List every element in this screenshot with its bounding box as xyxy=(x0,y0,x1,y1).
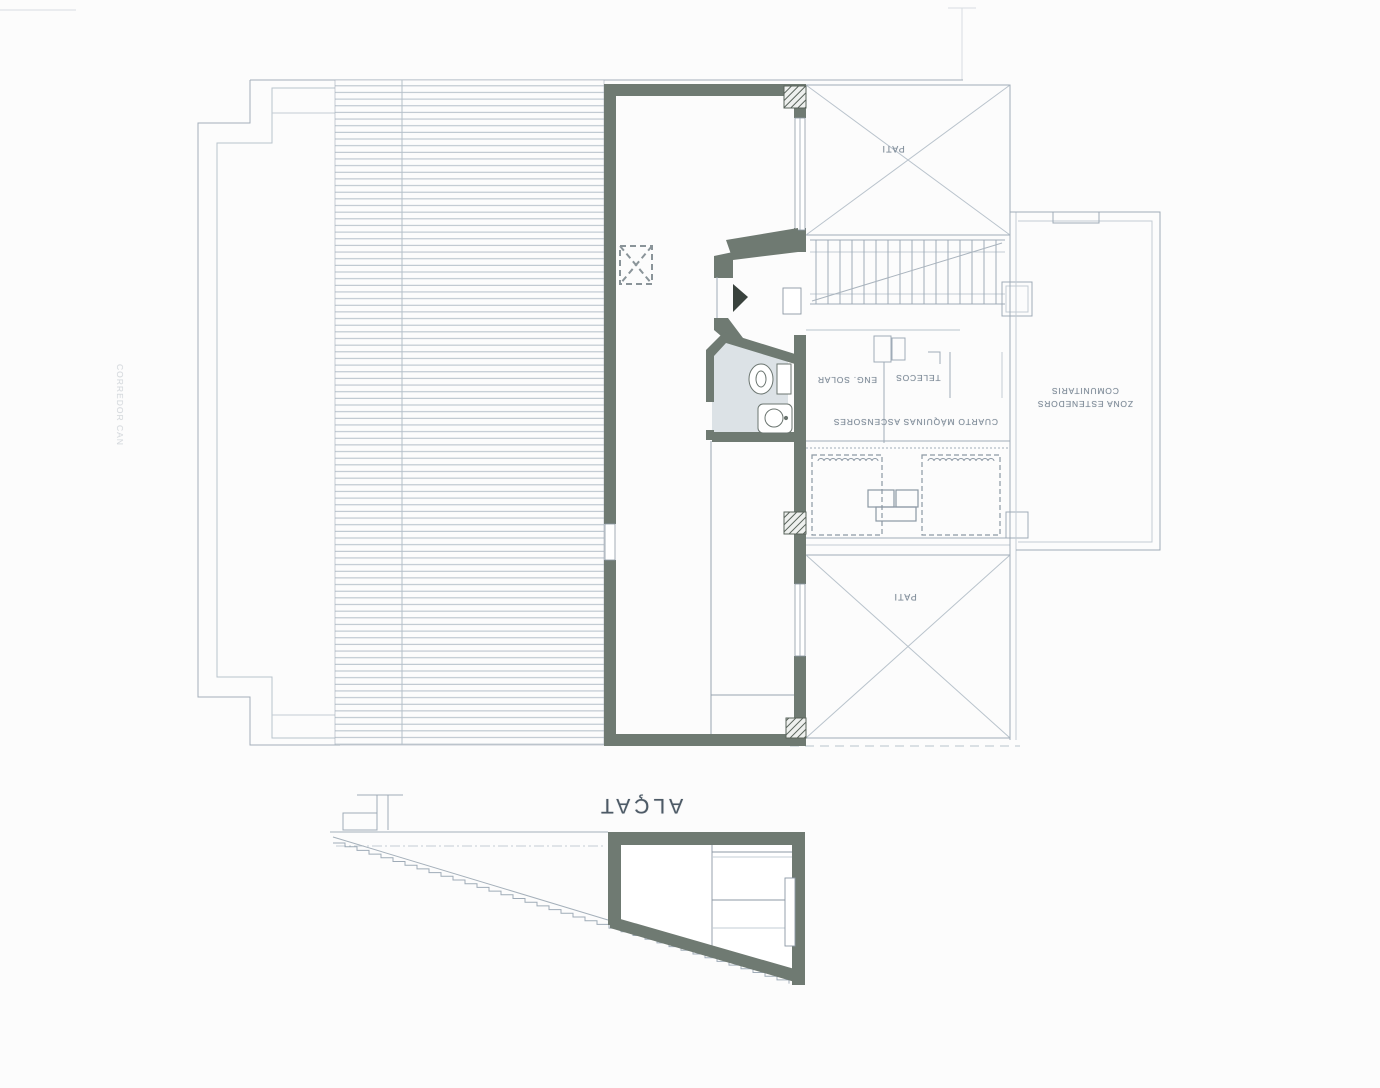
estenedors-label-line1: ZONA ESTENEDORS xyxy=(1037,399,1133,409)
sink xyxy=(758,404,792,433)
pati-top-label: PATI xyxy=(858,144,928,154)
pati-top xyxy=(806,85,1010,235)
tower-partitions xyxy=(711,441,794,734)
machine-coil-left xyxy=(818,459,878,461)
tower-wall-left-upper xyxy=(604,84,616,524)
section-door xyxy=(785,878,795,946)
door-threshold xyxy=(783,288,801,314)
section-chimney xyxy=(343,795,403,830)
skylight-dashed xyxy=(620,246,652,284)
solar-unit xyxy=(874,336,891,362)
estenedors-room xyxy=(1010,85,1160,740)
control-panel-b xyxy=(896,490,918,507)
telecos-label: TELECOS xyxy=(887,373,949,383)
telecom-unit xyxy=(892,338,905,360)
control-panel-a xyxy=(868,490,894,507)
machine-room xyxy=(806,455,1028,545)
pati-bottom xyxy=(790,555,1020,746)
section-drawing xyxy=(330,795,805,985)
toilet xyxy=(749,364,791,394)
tower-wall-top xyxy=(604,84,806,96)
section-slope-edge xyxy=(333,837,608,920)
eng-solar-label: ENG. SOLAR xyxy=(812,375,882,385)
corredor-label: CORREDOR CAN xyxy=(115,360,125,450)
estenedors-label-line2: COMUNITARIS xyxy=(1051,386,1119,396)
pillar-hatched-top xyxy=(784,86,806,108)
floor-plan-drawing xyxy=(0,0,1380,1088)
tower-wall-bottom xyxy=(604,734,806,746)
machine-coil-right xyxy=(928,459,994,461)
pati-bottom-label: PATI xyxy=(870,592,940,602)
estenedors-label: ZONA ESTENEDORS COMUNITARIS xyxy=(1025,384,1145,410)
scanned-drawing-page: PATI PATI ENG. SOLAR TELECOS CUARTO MÁQU… xyxy=(0,0,1380,1088)
wall-nib xyxy=(1006,512,1028,538)
pillar-hatched-mid xyxy=(784,512,806,534)
scan-edge-marks xyxy=(0,8,976,80)
section-title-label: ALÇAT xyxy=(590,793,690,817)
service-rooms xyxy=(806,330,1010,448)
tower xyxy=(604,84,806,746)
direction-arrow xyxy=(733,284,748,312)
pillar-hatched-bottom xyxy=(786,718,806,738)
tower-wall-left-lower xyxy=(604,560,616,746)
vestibule-walls xyxy=(714,228,798,347)
elevator-machine-left xyxy=(812,455,882,535)
elevator-machine-right xyxy=(922,455,1000,535)
bathroom xyxy=(706,332,795,442)
machine-room-label: CUARTO MÁQUINAS ASCENSORES xyxy=(838,417,998,427)
stair xyxy=(810,240,1032,316)
roof-terrace-deck xyxy=(335,80,604,745)
